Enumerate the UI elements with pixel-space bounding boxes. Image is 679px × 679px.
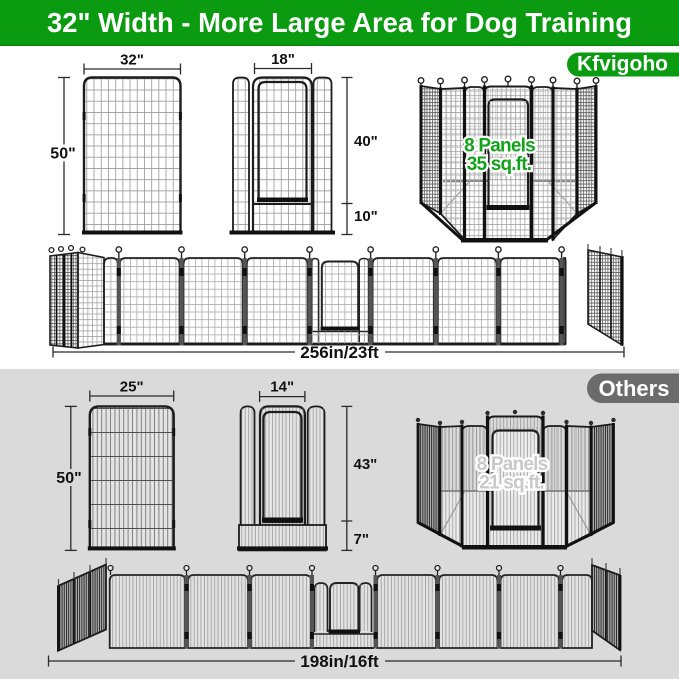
svg-text:Others: Others bbox=[599, 376, 670, 401]
svg-text:25": 25" bbox=[120, 379, 144, 396]
svg-text:50": 50" bbox=[50, 146, 75, 163]
svg-text:43": 43" bbox=[354, 456, 378, 473]
svg-text:35 sq.ft.: 35 sq.ft. bbox=[467, 154, 532, 175]
svg-text:32": 32" bbox=[120, 52, 144, 69]
svg-text:10": 10" bbox=[354, 208, 378, 225]
svg-text:7": 7" bbox=[354, 531, 369, 548]
svg-text:14": 14" bbox=[270, 379, 294, 396]
svg-text:198in/16ft: 198in/16ft bbox=[300, 652, 379, 671]
svg-text:50": 50" bbox=[56, 470, 81, 487]
svg-text:40": 40" bbox=[354, 133, 378, 150]
svg-text:32" Width - More Large Area fo: 32" Width - More Large Area for Dog Trai… bbox=[47, 7, 632, 38]
svg-text:256in/23ft: 256in/23ft bbox=[300, 343, 379, 362]
svg-text:18": 18" bbox=[271, 51, 295, 68]
svg-text:Kfvigoho: Kfvigoho bbox=[577, 53, 668, 76]
svg-text:21 sq.ft.: 21 sq.ft. bbox=[479, 473, 544, 494]
